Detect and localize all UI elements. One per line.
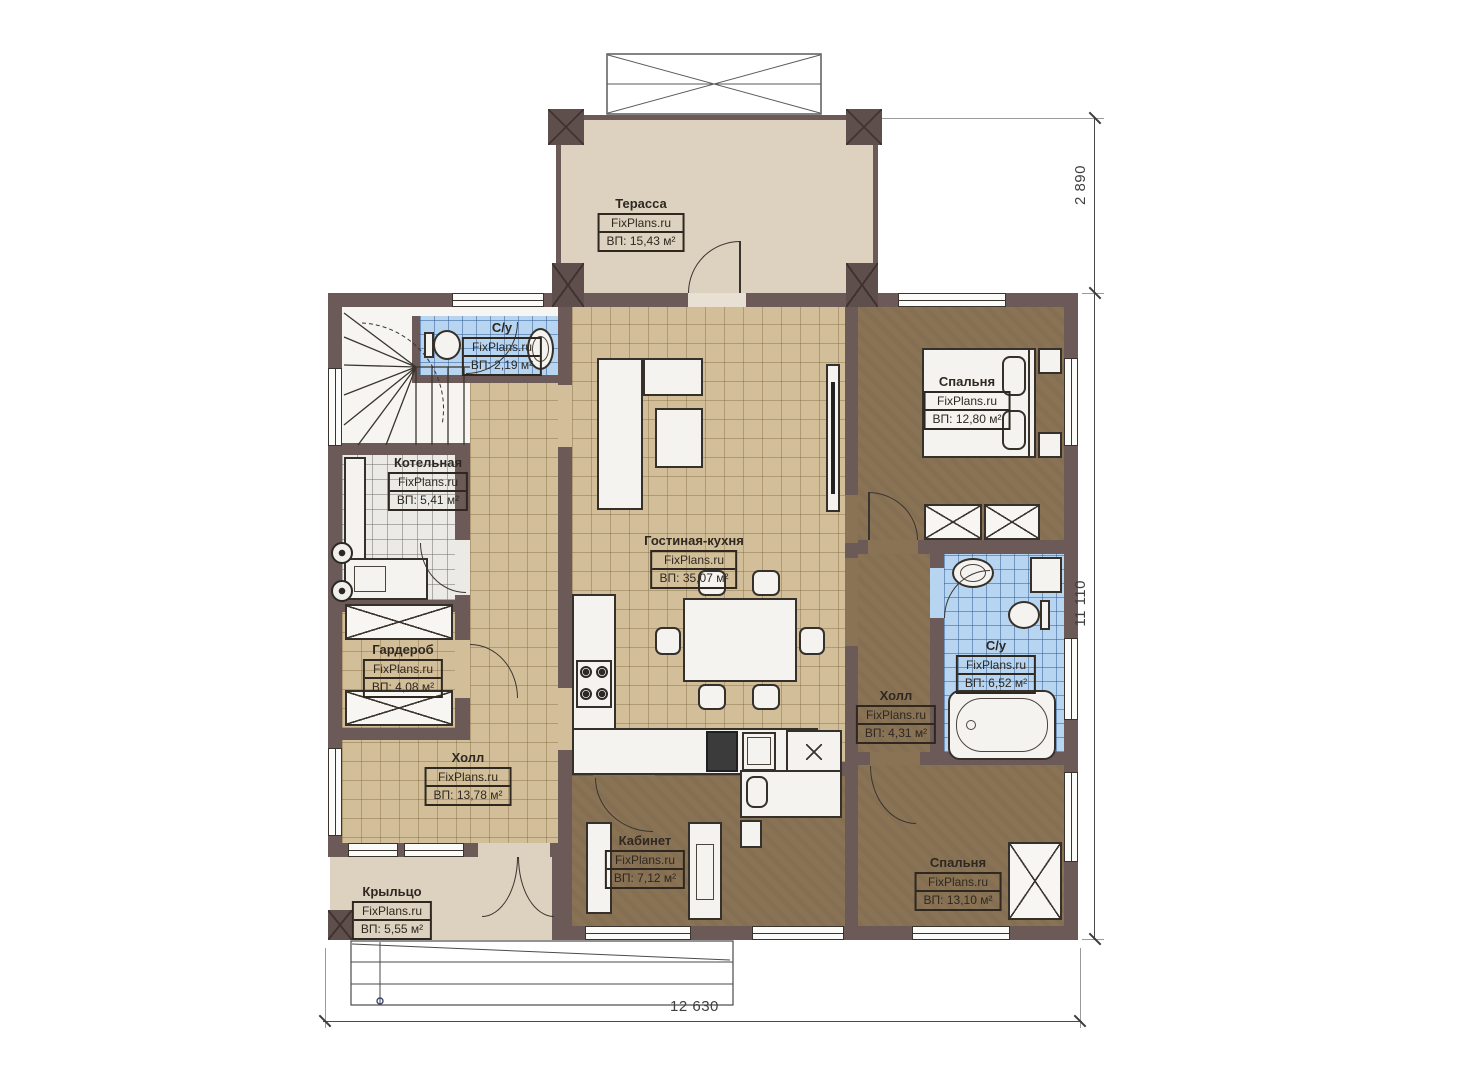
staircase [342,307,470,447]
closet-bedroom1-a [924,504,982,540]
opening-hall-kitchen [558,688,572,750]
nightstand-bedroom1-top [1038,348,1062,374]
sofa-vertical [597,358,643,510]
office-nightstand [740,820,762,848]
bathtub-drain [966,720,976,730]
room-label-bedroom2: Спальня FixPlans.ru ВП: 13,10 м² [915,855,1002,911]
door-leaf-terrace [739,241,741,293]
nightstand-bedroom1-bottom [1038,432,1062,458]
opening-hall-right [845,558,858,646]
room-label-bath: С/у FixPlans.ru ВП: 6,52 м² [956,638,1036,694]
floor-plan-canvas: Терасса FixPlans.ru ВП: 15,43 м² С/у Fix… [0,0,1473,1080]
dimension-house-side: 11 110 [1072,580,1089,627]
stove-burner-2 [596,666,608,678]
opening-terrace-door [688,293,746,307]
window-east-bedroom2 [1064,772,1078,862]
terrace-post-sw [552,263,584,307]
boiler-burner-2 [331,580,353,602]
terrace-wall-top [556,115,878,120]
room-label-bedroom1: Спальня FixPlans.ru ВП: 12,80 м² [924,374,1011,430]
sofa-top [643,358,703,396]
door-leaf-bedroom1 [868,492,870,540]
room-label-hall-left: Холл FixPlans.ru ВП: 13,78 м² [425,750,512,806]
stove-burner-3 [580,688,592,700]
opening-porch-door [478,843,550,857]
office-couch-pillow [746,776,768,808]
extension-line-terrace-top [882,118,1104,119]
opening-bedroom1-door [845,495,858,543]
bed1-headboard-line [1028,350,1030,456]
window-east-bedroom1 [1064,358,1078,446]
opening-bath-door [930,568,944,618]
closet-bedroom1-b [984,504,1040,540]
stove-burner-4 [596,688,608,700]
dining-chair-4 [752,684,780,710]
room-label-porch: Крыльцо FixPlans.ru ВП: 5,55 м² [352,884,432,940]
dining-chair-6 [799,627,825,655]
window-west-stair [328,368,342,446]
extension-line-bottom-right [1080,948,1081,1028]
window-south-hall-a [348,843,398,857]
window-east-bath [1064,638,1078,720]
wardrobe-unit-top [345,604,453,640]
room-label-living: Гостиная-кухня FixPlans.ru ВП: 35,07 м² [644,533,744,589]
wall-porch-right [552,843,572,940]
window-west-hall [328,748,342,836]
window-north-bedroom1 [898,293,1006,307]
roof-hatch [606,53,822,115]
kitchen-appliance [706,731,738,772]
dining-table [683,598,797,682]
dimension-terrace-depth: 2 890 [1072,165,1089,205]
dimension-house-width: 12 630 [670,998,719,1015]
tv-screen [831,382,835,494]
room-label-wardrobe: Гардероб FixPlans.ru ВП: 4,08 м² [363,642,443,698]
dimension-line-vertical [1094,118,1095,940]
boiler-burner-1 [331,542,353,564]
toilet-bowl-bath [1008,601,1040,629]
terrace-post-se [846,263,878,307]
kitchen-counter-bottom [572,728,818,775]
opening-wardrobe-door [455,640,470,698]
terrace-post-nw [548,109,584,145]
wardrobe-bedroom2 [1008,842,1062,920]
window-north-wc [452,293,544,307]
extension-line-bottom-left [325,948,326,1028]
window-south-bedroom2 [912,926,1010,940]
kitchen-sink-basin [747,737,771,765]
toilet-bowl-small [433,330,461,360]
boiler-sink [354,566,386,592]
room-label-boiler: Котельная FixPlans.ru ВП: 5,41 м² [388,455,468,511]
stove-burner-1 [580,666,592,678]
coffee-table [655,408,703,468]
office-desk-monitor [696,844,714,900]
opening-bedroom1-hall-door [868,540,918,554]
toilet-tank-bath [1040,600,1050,630]
room-label-hall-right: Холл FixPlans.ru ВП: 4,31 м² [856,688,936,744]
dining-chair-5 [655,627,681,655]
opening-bedroom2-door [870,752,920,765]
window-south-middle [752,926,844,940]
room-label-wc-small: С/у FixPlans.ru ВП: 2,19 м² [462,320,542,376]
wall-wardrobe-bottom [342,728,455,740]
porch-steps-hatch [350,940,734,1006]
opening-hall-living-top [558,385,572,447]
dimension-line-horizontal [323,1021,1082,1022]
porch-corner-post [328,910,352,940]
dining-chair-3 [698,684,726,710]
window-south-office [585,926,691,940]
window-south-hall-b [404,843,464,857]
bath-washer [1030,557,1062,593]
room-label-office: Кабинет FixPlans.ru ВП: 7,12 м² [605,833,685,889]
terrace-post-ne [846,109,882,145]
kitchen-cabinet-x-mark [806,744,822,760]
dining-chair-2 [752,570,780,596]
room-label-terrace: Терасса FixPlans.ru ВП: 15,43 м² [598,196,685,252]
